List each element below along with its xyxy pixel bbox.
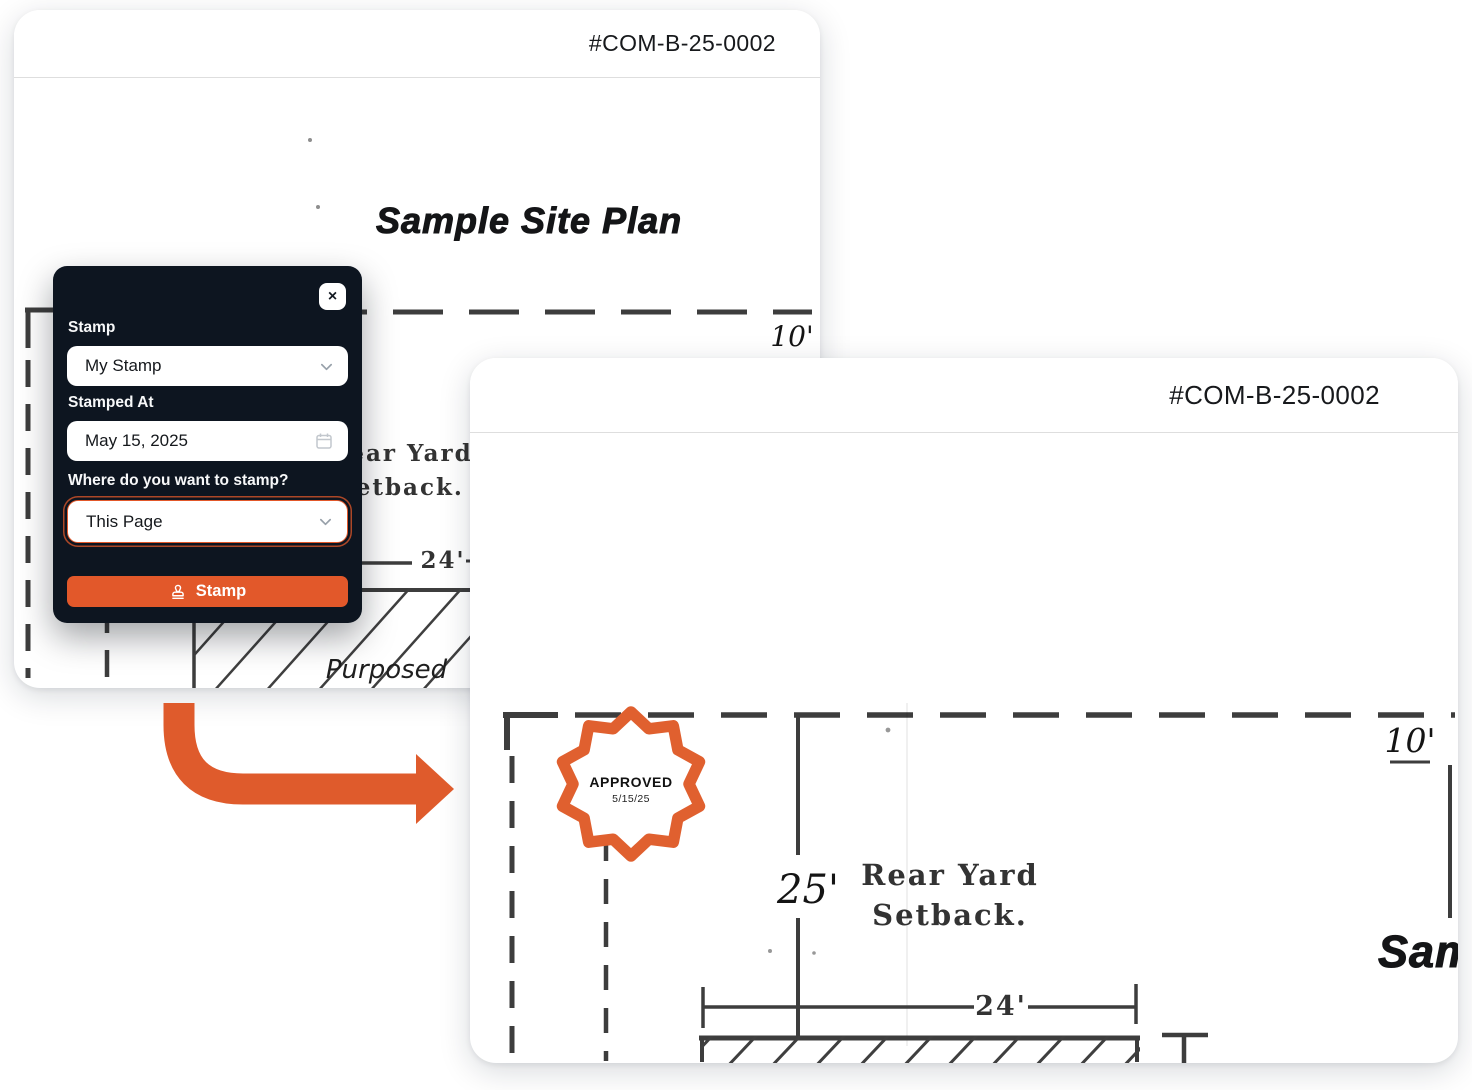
seal-date-text: 5/15/25 [561, 793, 701, 805]
where-label: Where do you want to stamp? [68, 472, 288, 490]
close-button[interactable]: × [319, 283, 346, 310]
stamp-field-label: Stamp [68, 319, 115, 337]
calendar-icon [314, 431, 334, 451]
stamp-submit-label: Stamp [196, 582, 246, 601]
stamped-at-input[interactable]: May 15, 2025 [67, 421, 348, 461]
page-title: Sample Site Plan [376, 200, 682, 242]
doc-id: #COM-B-25-0002 [589, 30, 776, 57]
close-icon: × [328, 289, 337, 305]
where-select[interactable]: This Page [67, 500, 348, 543]
stamped-at-value: May 15, 2025 [85, 431, 314, 451]
dim-10ft: 10' [1378, 721, 1442, 760]
page-title: Sample Site Plan [1378, 926, 1458, 978]
document-header-after: #COM-B-25-0002 [470, 358, 1458, 433]
rear-yard-label: Rear Yard [855, 858, 1045, 892]
setback-label: Setback. [860, 898, 1040, 932]
chevron-down-icon [318, 514, 333, 529]
dim-24ft: 24' [418, 547, 468, 574]
page: #COM-B-25-0002 Sample Site Plan 10' Rear… [0, 0, 1472, 1090]
workflow-arrow [140, 670, 480, 840]
document-header-before: #COM-B-25-0002 [14, 10, 820, 78]
stamp-modal: × Stamp My Stamp Stamped At May 15, 2025… [53, 266, 362, 623]
dim-25ft: 25' [766, 867, 850, 913]
dim-24ft: 24' [974, 991, 1028, 1022]
doc-id: #COM-B-25-0002 [1169, 380, 1380, 411]
document-card-after: #COM-B-25-0002 Sample Site Plan 10' 25' … [470, 358, 1458, 1063]
stamp-submit-button[interactable]: Stamp [67, 576, 348, 607]
seal-approved-text: APPROVED [561, 774, 701, 790]
curved-arrow-icon [140, 670, 480, 840]
stamp-select[interactable]: My Stamp [67, 346, 348, 386]
dim-10ft: 10' [762, 320, 820, 353]
stamp-icon [169, 583, 187, 601]
chevron-down-icon [319, 359, 334, 374]
stamp-select-value: My Stamp [85, 356, 319, 376]
where-select-value: This Page [86, 512, 318, 532]
stamped-at-label: Stamped At [68, 394, 154, 412]
